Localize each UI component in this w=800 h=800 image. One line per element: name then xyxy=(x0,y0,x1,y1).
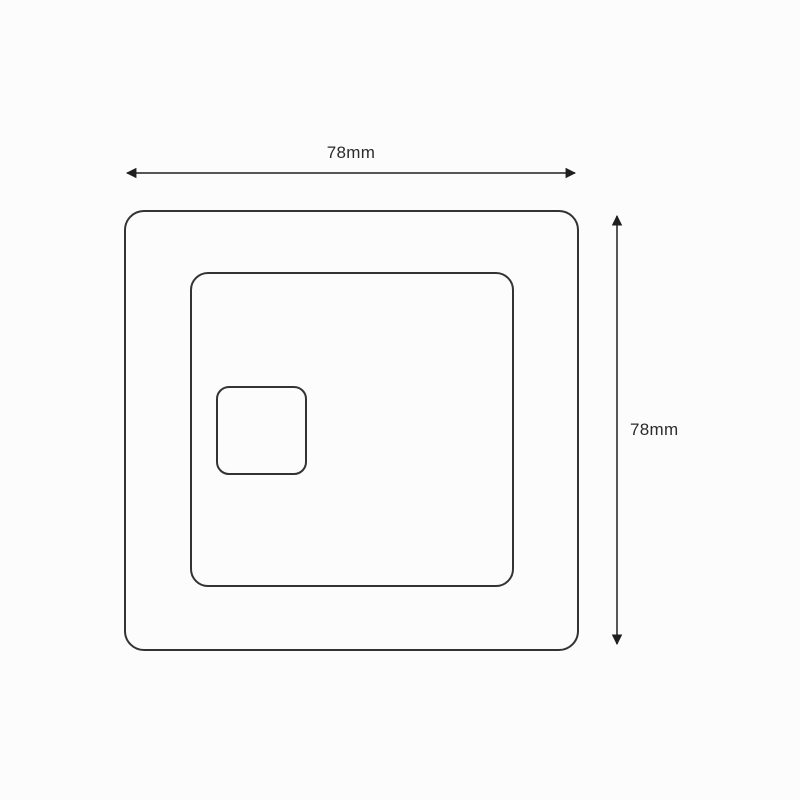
height-dimension-label: 78mm xyxy=(630,420,678,440)
button-outline xyxy=(216,386,307,475)
width-dimension-label: 78mm xyxy=(123,143,579,163)
dimension-drawing: 78mm 78mm xyxy=(0,0,800,800)
